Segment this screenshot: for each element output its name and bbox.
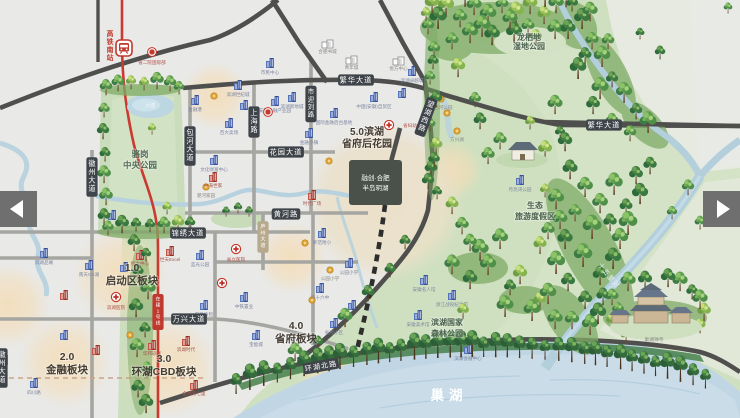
- svg-text:滨湖新地城: 滨湖新地城: [281, 103, 304, 110]
- svg-text:省府小区: 省府小区: [325, 329, 344, 336]
- svg-text:道: 道: [260, 241, 265, 249]
- svg-text:半岛玥湖: 半岛玥湖: [363, 183, 390, 192]
- svg-text:刘: 刘: [308, 102, 314, 111]
- svg-text:骆岗: 骆岗: [131, 149, 148, 159]
- svg-text:道: 道: [0, 375, 6, 384]
- svg-text:大塘: 大塘: [145, 102, 155, 109]
- svg-text:2.0: 2.0: [60, 351, 75, 363]
- svg-text:湿地公园: 湿地公园: [513, 41, 545, 51]
- svg-text:蓝光公园: 蓝光公园: [191, 261, 210, 268]
- svg-text:路: 路: [250, 125, 257, 134]
- svg-text:淝河家园: 淝河家园: [197, 192, 216, 199]
- svg-text:龙栖地: 龙栖地: [516, 32, 541, 42]
- svg-text:环湖CBD板块: 环湖CBD板块: [132, 365, 197, 378]
- svg-text:黄河路: 黄河路: [274, 210, 299, 219]
- svg-text:在: 在: [156, 295, 161, 302]
- svg-text:百大卖场: 百大卖场: [220, 129, 239, 136]
- svg-text:省府板块: 省府板块: [274, 332, 317, 345]
- svg-text:安徽美术馆: 安徽美术馆: [407, 321, 430, 328]
- svg-text:世天Excel: 世天Excel: [160, 256, 180, 263]
- svg-text:号: 号: [156, 314, 161, 320]
- svg-text:花园大道: 花园大道: [270, 148, 303, 157]
- svg-text:生态: 生态: [527, 200, 543, 210]
- svg-text:中央公园: 中央公园: [123, 160, 157, 170]
- svg-text:4.0: 4.0: [289, 320, 304, 332]
- svg-text:高: 高: [107, 29, 114, 38]
- svg-text:建: 建: [156, 301, 161, 308]
- svg-text:中铁置业: 中铁置业: [235, 303, 254, 310]
- svg-text:南: 南: [107, 45, 114, 54]
- svg-text:滨湖会展中心: 滨湖会展中心: [454, 355, 482, 362]
- svg-text:合肥书城: 合肥书城: [318, 48, 337, 55]
- svg-text:1: 1: [157, 308, 160, 314]
- svg-text:站: 站: [107, 53, 114, 62]
- svg-text:滨湖世纪城: 滨湖世纪城: [227, 91, 250, 98]
- svg-text:森林公园: 森林公园: [431, 328, 463, 338]
- svg-text:时代广场: 时代广场: [303, 200, 322, 207]
- svg-text:滨湖卓越城: 滨湖卓越城: [401, 77, 424, 84]
- svg-text:1.0: 1.0: [125, 262, 140, 274]
- svg-text:滨湖时代: 滨湖时代: [177, 346, 196, 353]
- svg-text:5.0滨湖: 5.0滨湖: [350, 125, 384, 138]
- svg-text:迎: 迎: [308, 94, 315, 103]
- svg-text:巢湖禅寺: 巢湖禅寺: [644, 336, 663, 343]
- svg-text:金融板块: 金融板块: [45, 363, 88, 376]
- svg-text:悦方中心: 悦方中心: [389, 65, 408, 72]
- svg-text:铁: 铁: [106, 37, 114, 46]
- svg-text:月亮湾公园: 月亮湾公园: [509, 186, 532, 193]
- svg-text:省府后花园: 省府后花园: [341, 137, 392, 150]
- svg-text:大: 大: [260, 235, 265, 243]
- svg-text:市: 市: [308, 87, 315, 96]
- svg-text:中国(安徽)自贸区: 中国(安徽)自贸区: [356, 103, 392, 110]
- svg-text:路: 路: [308, 110, 315, 119]
- svg-text:融创·合肥: 融创·合肥: [361, 173, 390, 182]
- svg-text:道: 道: [88, 184, 95, 193]
- svg-text:启动区板块: 启动区板块: [106, 274, 159, 287]
- svg-text:南天OA湖: 南天OA湖: [79, 271, 100, 278]
- svg-text:公园小学: 公园小学: [340, 269, 359, 276]
- svg-text:四川路: 四川路: [27, 389, 41, 396]
- svg-text:州: 州: [260, 230, 265, 236]
- svg-text:繁华大道: 繁华大道: [340, 76, 373, 85]
- svg-text:巢湖: 巢湖: [430, 387, 468, 403]
- svg-text:滨湖医院: 滨湖医院: [107, 304, 126, 311]
- svg-text:中海世家: 中海世家: [204, 182, 223, 189]
- svg-text:金隅南七里: 金隅南七里: [183, 390, 206, 397]
- svg-text:市民中心: 市民中心: [261, 69, 280, 76]
- svg-text:师范附小: 师范附小: [313, 239, 332, 246]
- svg-text:青年城: 青年城: [345, 64, 359, 71]
- svg-text:方兴湖: 方兴湖: [450, 136, 464, 143]
- svg-text:公园小学: 公园小学: [321, 275, 340, 282]
- svg-text:文化财富中心: 文化财富中心: [200, 166, 228, 173]
- svg-text:省立医院: 省立医院: [227, 256, 246, 263]
- svg-text:3.0: 3.0: [157, 353, 172, 365]
- svg-text:宝能城: 宝能城: [249, 341, 263, 348]
- svg-text:安徽名人馆: 安徽名人馆: [413, 286, 436, 293]
- svg-text:旅游度假区: 旅游度假区: [515, 211, 555, 221]
- svg-text:道: 道: [186, 153, 193, 162]
- svg-text:线: 线: [156, 319, 161, 326]
- svg-text:滨湖品阁: 滨湖品阁: [35, 259, 54, 266]
- svg-text:金融港: 金融港: [188, 106, 202, 113]
- svg-text:金融小镇: 金融小镇: [300, 139, 319, 146]
- svg-text:繁华大道: 繁华大道: [588, 121, 621, 130]
- svg-text:四十六中: 四十六中: [311, 294, 330, 301]
- svg-text:万兴大道: 万兴大道: [173, 315, 206, 324]
- svg-text:国际金融后台基地: 国际金融后台基地: [316, 119, 353, 126]
- svg-text:省二院国际部: 省二院国际部: [138, 59, 166, 66]
- svg-text:锦绣大道: 锦绣大道: [172, 229, 205, 238]
- svg-text:庐: 庐: [260, 222, 265, 230]
- svg-text:滨湖国家: 滨湖国家: [431, 317, 464, 327]
